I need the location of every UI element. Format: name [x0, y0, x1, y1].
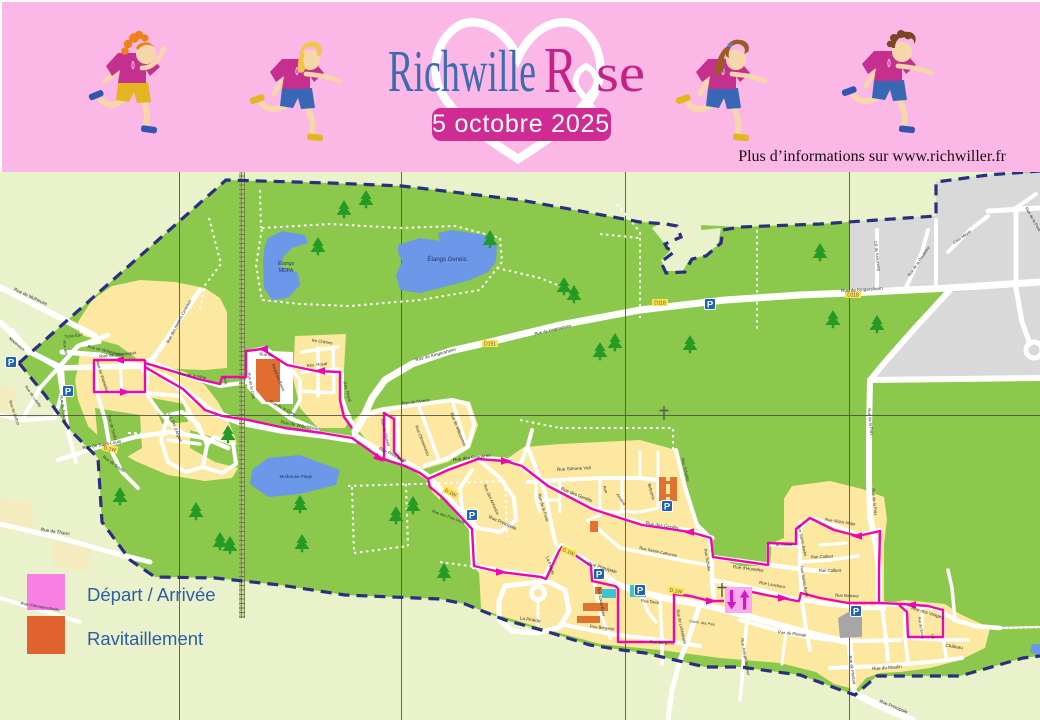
svg-text:P: P — [8, 358, 15, 369]
svg-text:se: se — [596, 43, 645, 103]
svg-text:R: R — [544, 34, 577, 107]
svg-text:D191: D191 — [484, 342, 496, 348]
svg-text:Plus d’informations sur www.ri: Plus d’informations sur www.richwiller.f… — [738, 148, 1006, 165]
svg-text:Ravitaillement: Ravitaillement — [87, 628, 203, 649]
svg-text:Al. Kimbo: Al. Kimbo — [776, 543, 792, 547]
svg-text:D118: D118 — [654, 301, 666, 307]
svg-text:Rue Mansior: Rue Mansior — [835, 593, 860, 599]
svg-text:D118: D118 — [847, 293, 859, 299]
svg-text:Rue Colbert: Rue Colbert — [811, 554, 834, 560]
svg-text:Étangs: Étangs — [278, 260, 295, 267]
svg-text:MDPA: MDPA — [279, 268, 294, 274]
svg-text:Mulhouse Plage: Mulhouse Plage — [280, 474, 313, 479]
svg-text:Départ / Arrivée: Départ / Arrivée — [87, 584, 216, 605]
svg-text:Richwille: Richwille — [388, 38, 536, 104]
svg-text:Étangs Geneis: Étangs Geneis — [427, 256, 466, 263]
svg-text:Rue Colbert: Rue Colbert — [819, 568, 842, 573]
svg-text:5 octobre 2025: 5 octobre 2025 — [432, 110, 610, 138]
